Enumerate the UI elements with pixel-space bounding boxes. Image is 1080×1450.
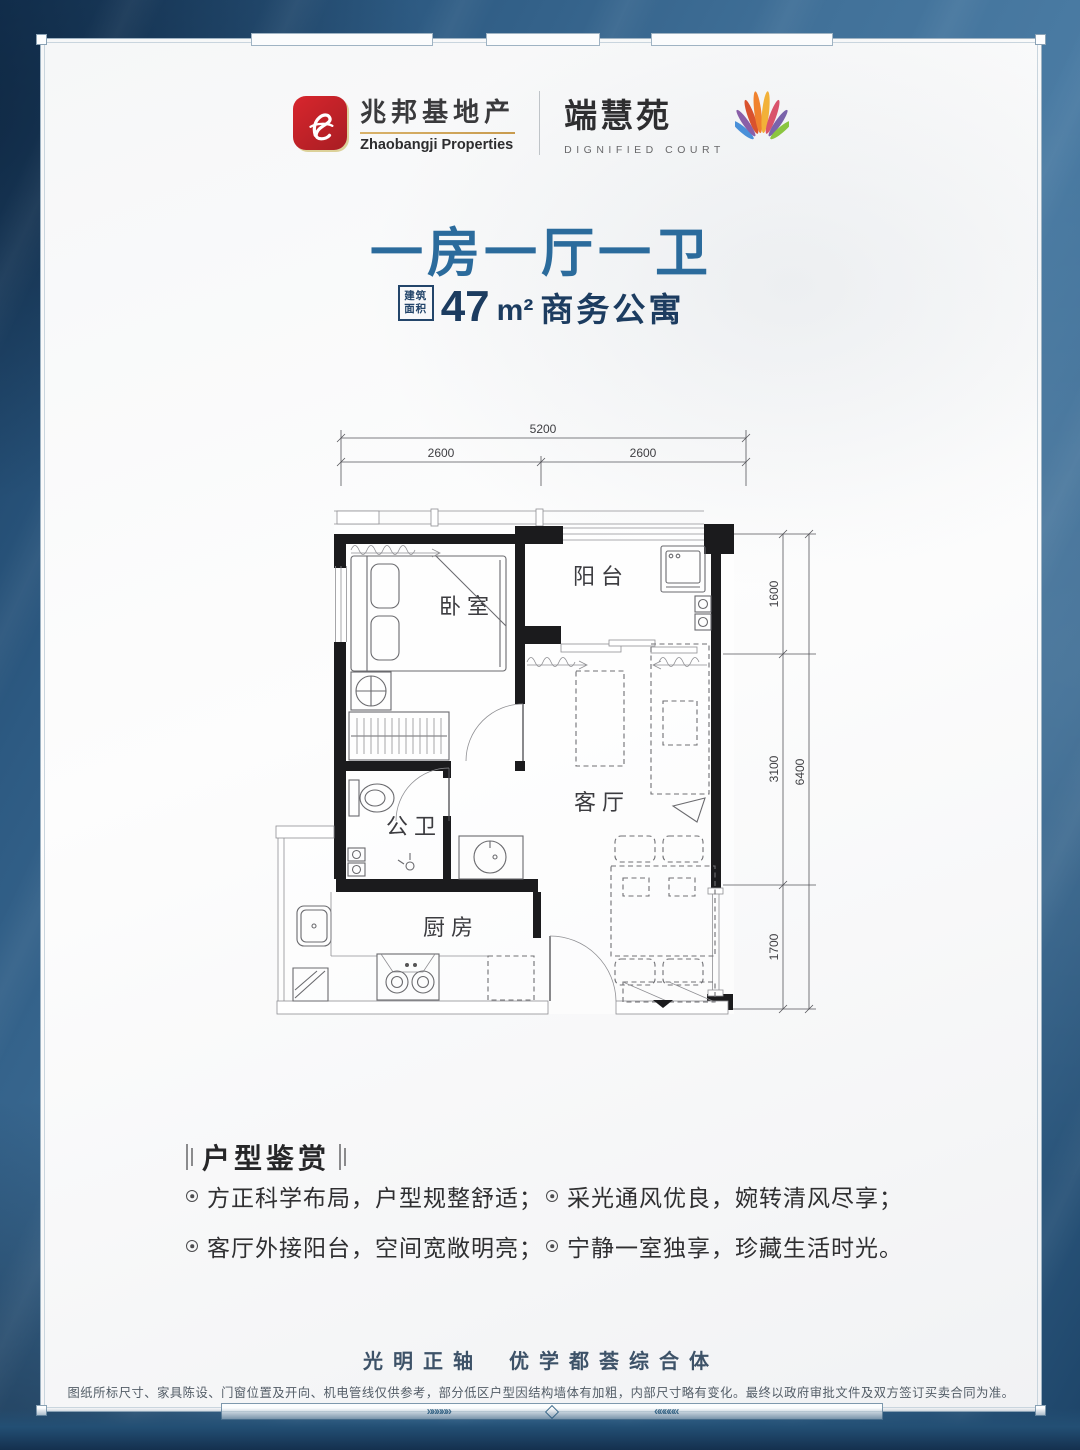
bullet-icon	[186, 1190, 198, 1202]
bottom-gradient-strip	[0, 1408, 1080, 1450]
features-heading-text: 户型鉴赏	[202, 1137, 330, 1177]
fan-rays-icon	[735, 89, 789, 151]
frame-top-band	[251, 33, 433, 46]
gold-rule	[360, 132, 515, 134]
dim-right-seg2: 3100	[767, 755, 781, 782]
bedroom-label: 卧室	[439, 594, 495, 619]
disclaimer-text: 图纸所标尺寸、家具陈设、门窗位置及开向、机电管线仅供参考，部分低区户型因结构墙体…	[41, 1383, 1041, 1401]
bullet-icon	[186, 1240, 198, 1252]
footer-slogan: 光明正轴优学都荟综合体	[41, 1345, 1041, 1374]
area-badge-line2: 面积	[404, 303, 427, 316]
duanhuiyuan-text: 端慧苑 DIGNIFIED COURT	[564, 89, 725, 156]
feature-text: 方正科学布局，户型规整舒适；	[207, 1179, 543, 1213]
dim-top-left: 2600	[428, 446, 455, 460]
feature-text: 宁静一室独享，珍藏生活时光。	[567, 1229, 903, 1263]
frame-top-band	[651, 33, 833, 46]
zhaobangji-monogram-icon	[293, 96, 347, 150]
bullet-icon	[546, 1240, 558, 1252]
floorplan: 5200 2600 2600 1600 3100 1700 6400	[271, 416, 871, 1076]
logo-duanhuiyuan: 端慧苑 DIGNIFIED COURT	[564, 89, 789, 156]
zhaobangji-name-en: Zhaobangji Properties	[360, 137, 515, 153]
heading-deco-left	[186, 1144, 193, 1170]
duanhuiyuan-name-cn: 端慧苑	[564, 89, 725, 137]
kitchen-label: 厨房	[423, 915, 479, 940]
bathroom-label: 公卫	[386, 814, 442, 839]
area-unit: m²	[497, 297, 534, 326]
dim-top-right: 2600	[630, 446, 657, 460]
frame-top-band	[486, 33, 600, 46]
area-badge-line1: 建筑	[404, 290, 427, 303]
frame-corner-top-left	[36, 34, 47, 45]
zhaobangji-text: 兆邦基地产 Zhaobangji Properties	[360, 92, 515, 153]
logo-zhaobangji: 兆邦基地产 Zhaobangji Properties	[293, 92, 515, 153]
dim-top-total: 5200	[530, 422, 557, 436]
parapet	[334, 509, 704, 526]
area-badge: 建筑 面积	[398, 285, 434, 321]
poster-page: { "header": { "logo_zhaobangji": { "name…	[0, 0, 1080, 1450]
bullet-icon	[546, 1190, 558, 1202]
page-title: 一房一厅一卫	[41, 211, 1041, 287]
features-heading: 户型鉴赏	[186, 1137, 346, 1177]
feature-text: 客厅外接阳台，空间宽敞明亮；	[207, 1229, 543, 1263]
area-row: 建筑 面积 47 m² 商务公寓	[41, 285, 1041, 325]
dim-right-total: 6400	[793, 758, 807, 785]
dim-right-seg1: 1600	[767, 580, 781, 607]
feature-item: 采光通风优良，婉转清风尽享；	[546, 1179, 903, 1213]
feature-item: 方正科学布局，户型规整舒适；	[186, 1179, 543, 1213]
frame-corner-top-right	[1035, 34, 1046, 45]
floorplan-drawing: 5200 2600 2600 1600 3100 1700 6400	[271, 416, 871, 1076]
logo-divider	[539, 91, 540, 155]
living-label: 客厅	[574, 790, 630, 815]
feature-item: 宁静一室独享，珍藏生活时光。	[546, 1229, 903, 1263]
header-logos: 兆邦基地产 Zhaobangji Properties 端慧苑 DIGNIFIE…	[41, 89, 1041, 156]
poster-card: 兆邦基地产 Zhaobangji Properties 端慧苑 DIGNIFIE…	[40, 38, 1042, 1412]
feature-item: 客厅外接阳台，空间宽敞明亮；	[186, 1229, 543, 1263]
dim-right-seg3: 1700	[767, 933, 781, 960]
wardrobe	[349, 712, 449, 760]
slogan-part1: 光明正轴	[363, 1351, 483, 1373]
monogram-script-icon	[301, 104, 339, 142]
heading-deco-right	[339, 1144, 346, 1170]
dim-right: 1600 3100 1700 6400	[723, 530, 816, 1013]
area-suffix: 商务公寓	[540, 295, 684, 325]
area-number: 47	[441, 288, 490, 325]
zhaobangji-name-cn: 兆邦基地产	[360, 92, 515, 129]
feature-text: 采光通风优良，婉转清风尽享；	[567, 1179, 903, 1213]
balcony-label: 阳台	[573, 564, 629, 589]
dim-top: 5200 2600 2600	[337, 422, 750, 486]
slogan-part2: 优学都荟综合体	[509, 1351, 719, 1373]
duanhuiyuan-name-en: DIGNIFIED COURT	[564, 144, 725, 156]
